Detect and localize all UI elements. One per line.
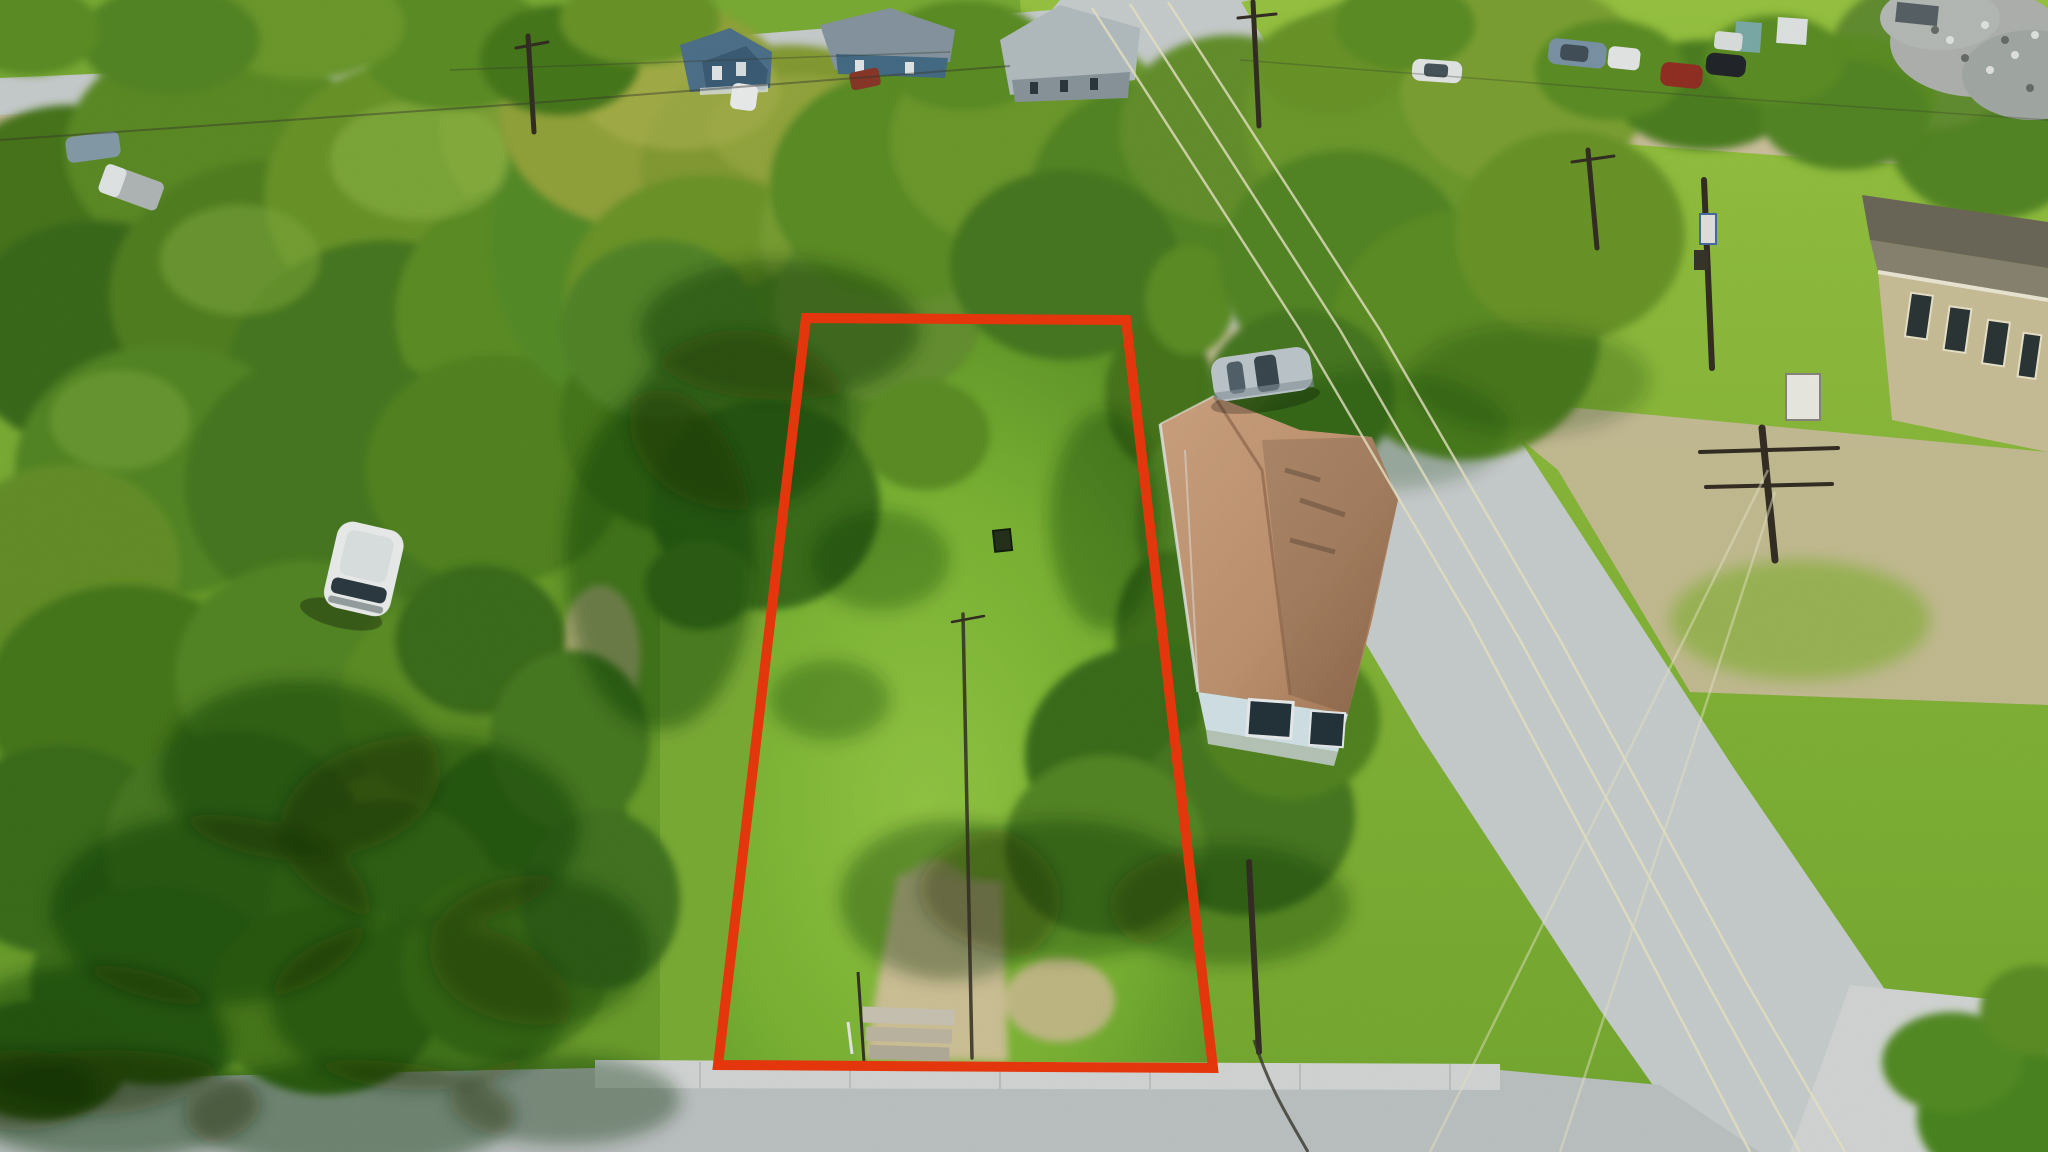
aerial-photo (0, 0, 2048, 1152)
aerial-photo-canvas (0, 0, 2048, 1152)
film-grain-overlay (0, 0, 2048, 1152)
